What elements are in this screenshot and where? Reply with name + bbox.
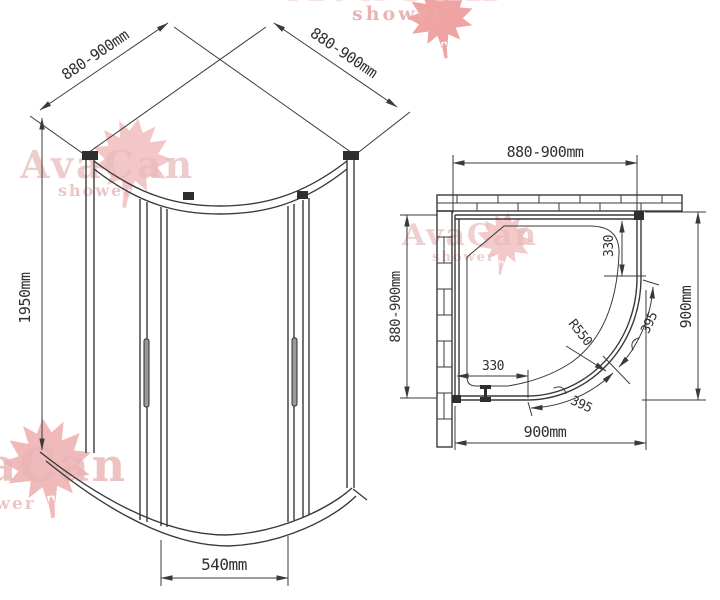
- wall-post-right: [347, 160, 354, 488]
- shower-enclosure-drawing: 880-900mm 880-900mm 1950mm 540mm: [0, 0, 720, 600]
- wall-profile-bottom-left: [452, 395, 461, 403]
- dim-label-arc-right: 395: [638, 310, 661, 336]
- door-handle-plan[interactable]: [480, 385, 491, 402]
- technical-drawing-page: AvaCan shower AvaCan shower AvaCan showe…: [0, 0, 720, 600]
- dim-label-panel-bottom: 330: [482, 359, 504, 374]
- post-cap-right: [343, 151, 359, 160]
- rail-bracket: [297, 191, 308, 199]
- dim-label-panel-right: 330: [602, 235, 617, 257]
- door-frames: [140, 198, 309, 527]
- plan-view: 880-900mm 880-900mm 900mm 900mm 330: [388, 143, 706, 450]
- door-handle-left[interactable]: [144, 339, 149, 407]
- tray-base: [40, 452, 367, 546]
- dim-label-height: 1950mm: [16, 272, 34, 324]
- dim-label-plan-bottom: 900mm: [524, 423, 567, 441]
- front-view: 880-900mm 880-900mm 1950mm 540mm: [16, 23, 410, 586]
- wall-top: [437, 195, 682, 211]
- dim-label-plan-right: 900mm: [677, 285, 695, 328]
- wall-left: [437, 211, 452, 447]
- wall-post-left: [86, 160, 94, 453]
- dim-label-plan-left: 880-900mm: [388, 271, 404, 342]
- post-cap-left: [82, 151, 98, 160]
- dim-label-arc-bottom: 395: [568, 393, 594, 416]
- rail-bracket: [183, 192, 194, 200]
- dim-label-door-width: 540mm: [201, 555, 247, 574]
- corner-post-top-right: [634, 211, 644, 220]
- door-handle-right[interactable]: [292, 338, 297, 406]
- dim-label-plan-top: 880-900mm: [507, 143, 584, 161]
